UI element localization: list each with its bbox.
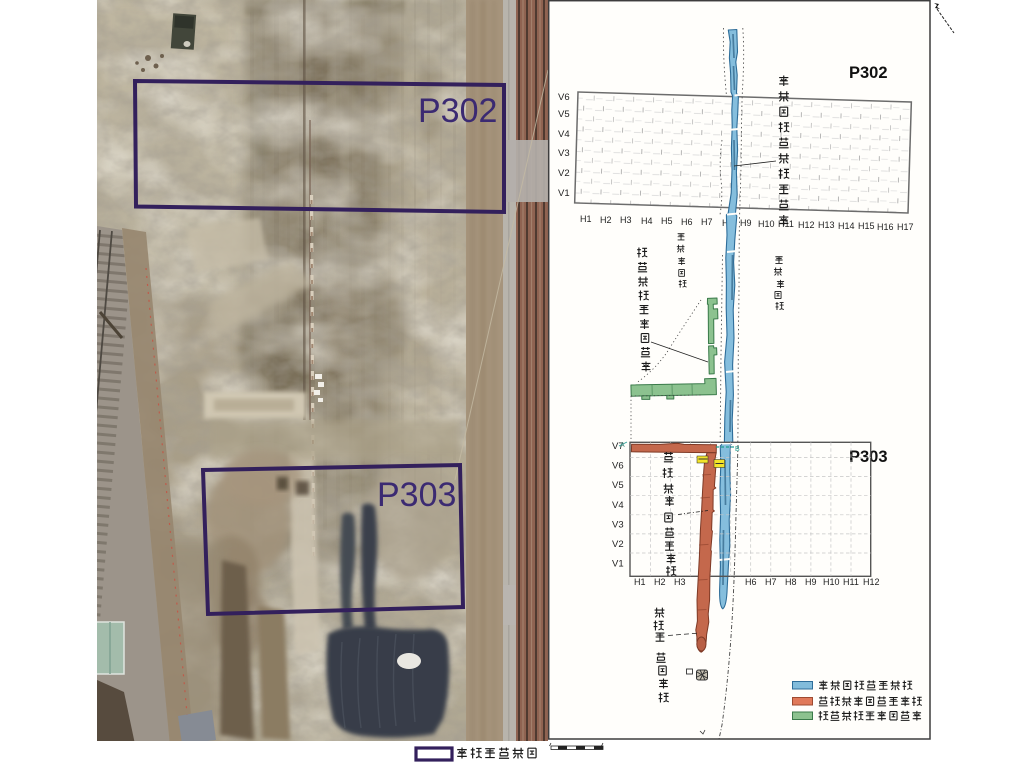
svg-text:H14: H14 [838, 221, 855, 231]
svg-text:H7: H7 [701, 217, 713, 227]
svg-text:H16: H16 [877, 222, 894, 232]
svg-text:V2: V2 [558, 168, 570, 179]
svg-text:V3: V3 [612, 519, 624, 530]
svg-text:V1: V1 [558, 188, 570, 199]
svg-text:H10: H10 [823, 577, 840, 587]
svg-text:V3: V3 [558, 148, 570, 159]
svg-text:H3: H3 [674, 577, 686, 587]
svg-text:V6: V6 [612, 461, 624, 472]
svg-text:H9: H9 [805, 577, 817, 587]
svg-text:H10: H10 [758, 219, 775, 229]
svg-text:A: A [620, 442, 625, 449]
svg-text:H2: H2 [600, 215, 612, 225]
svg-text:H6: H6 [681, 217, 693, 227]
svg-text:P302: P302 [418, 92, 497, 130]
svg-text:H12: H12 [798, 220, 815, 230]
svg-text:H17: H17 [897, 222, 914, 232]
svg-text:H15: H15 [858, 221, 875, 231]
svg-text:H3: H3 [620, 215, 632, 225]
svg-text:H1: H1 [580, 214, 592, 224]
svg-text:H7: H7 [765, 577, 777, 587]
svg-text:V1: V1 [612, 559, 624, 570]
svg-text:H12: H12 [863, 577, 880, 587]
svg-text:H9: H9 [740, 218, 752, 228]
svg-text:H1: H1 [634, 577, 646, 587]
svg-text:H13: H13 [818, 220, 835, 230]
svg-text:V5: V5 [558, 109, 570, 120]
svg-text:P303: P303 [377, 476, 456, 514]
svg-text:V5: V5 [612, 480, 624, 491]
svg-text:H11: H11 [843, 577, 859, 587]
svg-text:V4: V4 [558, 129, 570, 140]
svg-text:P302: P302 [849, 64, 888, 82]
svg-text:V2: V2 [612, 539, 624, 550]
svg-text:H2: H2 [654, 577, 666, 587]
svg-text:V6: V6 [558, 92, 570, 103]
svg-text:H4: H4 [641, 216, 653, 226]
svg-text:P303: P303 [849, 448, 888, 466]
svg-text:H5: H5 [661, 216, 673, 226]
svg-text:H6: H6 [745, 577, 757, 587]
svg-text:V4: V4 [612, 500, 624, 511]
svg-text:H8: H8 [785, 577, 797, 587]
svg-text:B: B [735, 446, 740, 453]
